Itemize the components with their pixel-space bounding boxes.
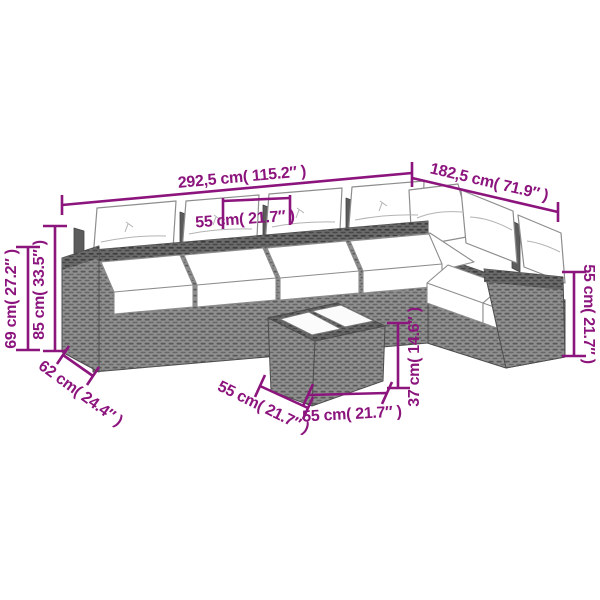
dim-label-left-height-inner: 85 cm( 33.5″ ) [31, 240, 49, 340]
dim-label-left-height-outer: 69 cm( 27.2″ ) [3, 249, 21, 349]
dim-label-right-height: 55 cm( 21.7″ ) [579, 264, 597, 364]
coffee-table [268, 303, 385, 406]
furniture-illustration [0, 0, 600, 600]
dim-label-table-height: 37 cm( 14.6″ ) [406, 307, 424, 407]
left-armrest [62, 246, 99, 372]
diagram-canvas: 292,5 cm( 115.2″ ) 182,5 cm( 71.9″ ) 55 … [0, 0, 600, 600]
